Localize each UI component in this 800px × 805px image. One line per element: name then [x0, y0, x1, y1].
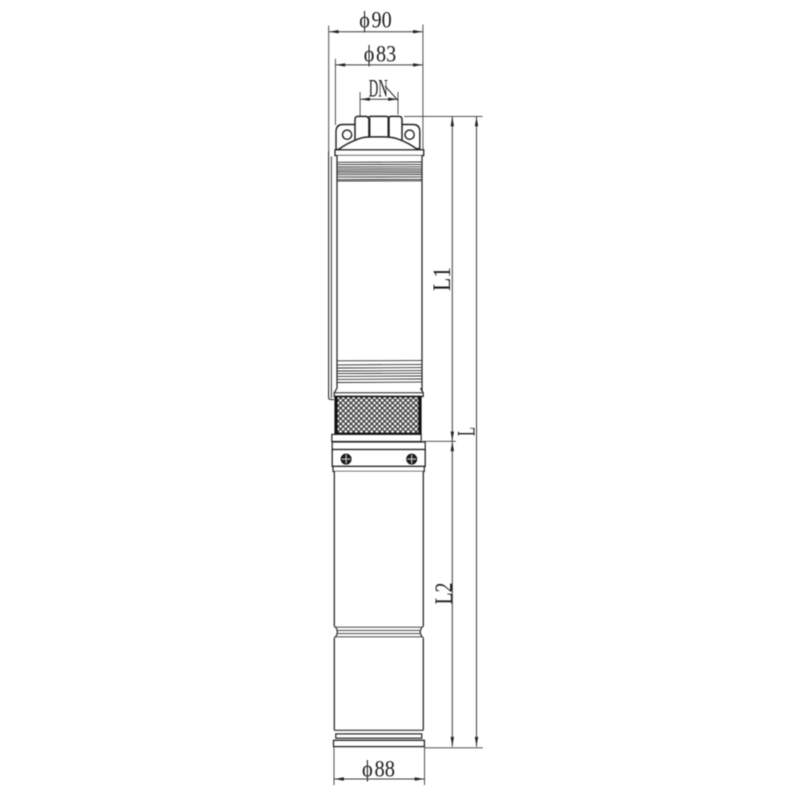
svg-text:L2: L2 [431, 583, 458, 605]
svg-text:ϕ 88: ϕ 88 [362, 757, 395, 782]
svg-text:DN: DN [369, 76, 388, 103]
svg-text:L: L [453, 427, 480, 436]
svg-text:ϕ 90: ϕ 90 [359, 7, 392, 32]
svg-text:ϕ 83: ϕ 83 [364, 42, 397, 67]
svg-text:L1: L1 [429, 267, 456, 291]
